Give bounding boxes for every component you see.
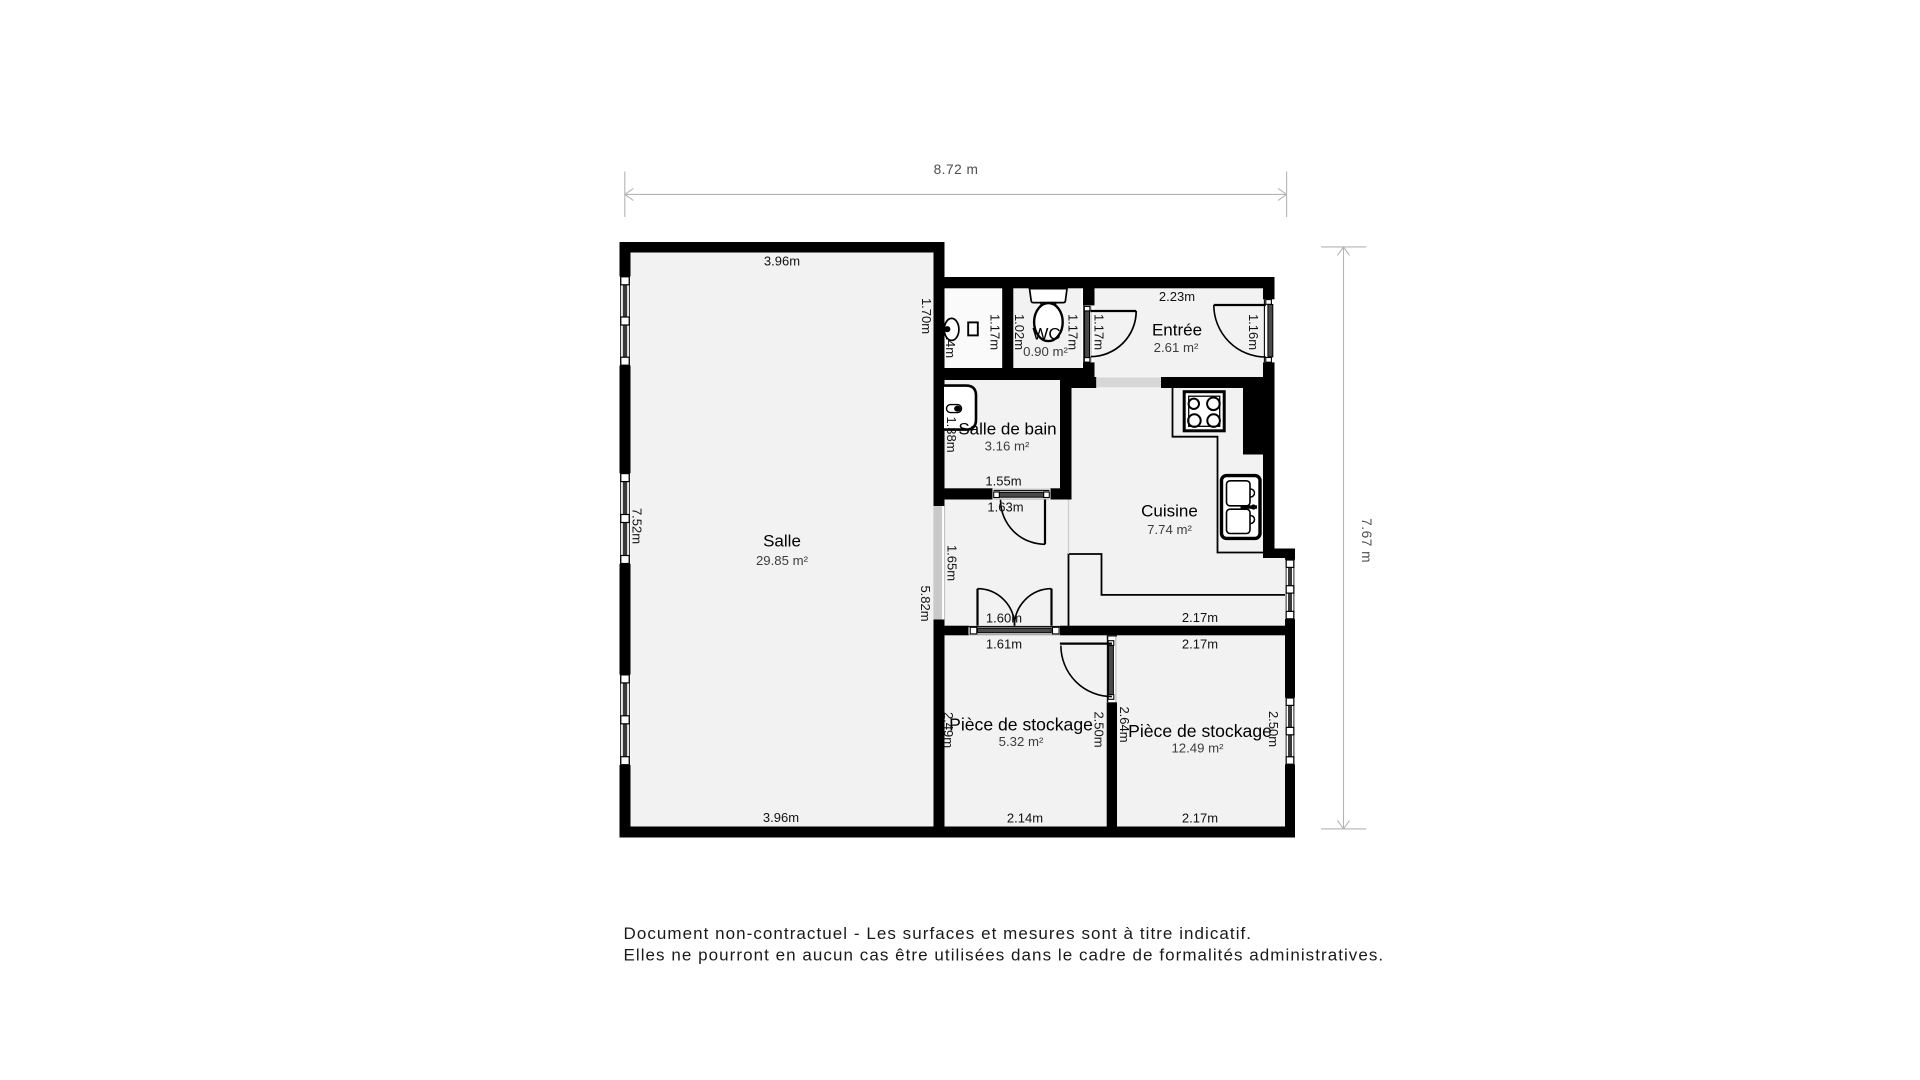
svg-text:2.61 m²: 2.61 m²	[1154, 340, 1199, 355]
svg-text:Document non-contractuel - Les: Document non-contractuel - Les surfaces …	[624, 924, 1253, 943]
svg-text:1.38m: 1.38m	[944, 416, 959, 452]
svg-text:12.49 m²: 12.49 m²	[1171, 741, 1224, 756]
svg-text:0.90 m²: 0.90 m²	[1023, 344, 1068, 359]
svg-text:3.96m: 3.96m	[764, 254, 800, 269]
svg-text:5.32 m²: 5.32 m²	[999, 734, 1044, 749]
svg-text:1.17m: 1.17m	[1092, 314, 1107, 350]
svg-text:2.23m: 2.23m	[1159, 289, 1195, 304]
svg-text:Elles ne pourront en aucun cas: Elles ne pourront en aucun cas être util…	[624, 946, 1385, 965]
svg-text:WC: WC	[1032, 325, 1060, 344]
svg-text:Pièce de stockage: Pièce de stockage	[1128, 721, 1272, 741]
svg-text:1.02m: 1.02m	[1012, 314, 1027, 350]
svg-text:Salle: Salle	[763, 532, 801, 551]
svg-text:1.65m: 1.65m	[945, 545, 960, 581]
svg-text:2.50m: 2.50m	[1266, 711, 1281, 747]
svg-text:3.96m: 3.96m	[763, 810, 799, 825]
svg-text:7.52m: 7.52m	[630, 508, 645, 544]
svg-text:7.67 m: 7.67 m	[1359, 518, 1374, 563]
svg-text:1.70m: 1.70m	[919, 298, 934, 334]
svg-text:Pièce de stockage: Pièce de stockage	[949, 715, 1093, 735]
svg-text:7.74 m²: 7.74 m²	[1147, 522, 1192, 537]
svg-text:29.85 m²: 29.85 m²	[756, 553, 809, 568]
svg-text:2.17m: 2.17m	[1182, 811, 1218, 826]
svg-text:2.64m: 2.64m	[1117, 706, 1132, 742]
svg-text:1.61m: 1.61m	[986, 636, 1022, 651]
svg-text:1.17m: 1.17m	[1066, 314, 1081, 350]
svg-text:1.16m: 1.16m	[1246, 314, 1261, 350]
svg-text:2.49m: 2.49m	[941, 712, 956, 748]
svg-text:8.72 m: 8.72 m	[934, 162, 979, 177]
svg-text:5.82m: 5.82m	[918, 585, 933, 621]
svg-text:2.17m: 2.17m	[1182, 610, 1218, 625]
svg-text:1.63m: 1.63m	[987, 500, 1023, 515]
svg-text:2.50m: 2.50m	[1092, 711, 1107, 747]
svg-text:1.55m: 1.55m	[985, 474, 1021, 489]
svg-text:3.16 m²: 3.16 m²	[985, 439, 1030, 454]
svg-text:1.60m: 1.60m	[986, 611, 1022, 626]
svg-text:Cuisine: Cuisine	[1141, 502, 1198, 521]
svg-text:2.14m: 2.14m	[1007, 811, 1043, 826]
svg-text:1.17m: 1.17m	[988, 314, 1003, 350]
svg-text:Salle de bain: Salle de bain	[958, 420, 1056, 439]
svg-text:2.17m: 2.17m	[1182, 636, 1218, 651]
svg-text:Entrée: Entrée	[1152, 321, 1202, 340]
